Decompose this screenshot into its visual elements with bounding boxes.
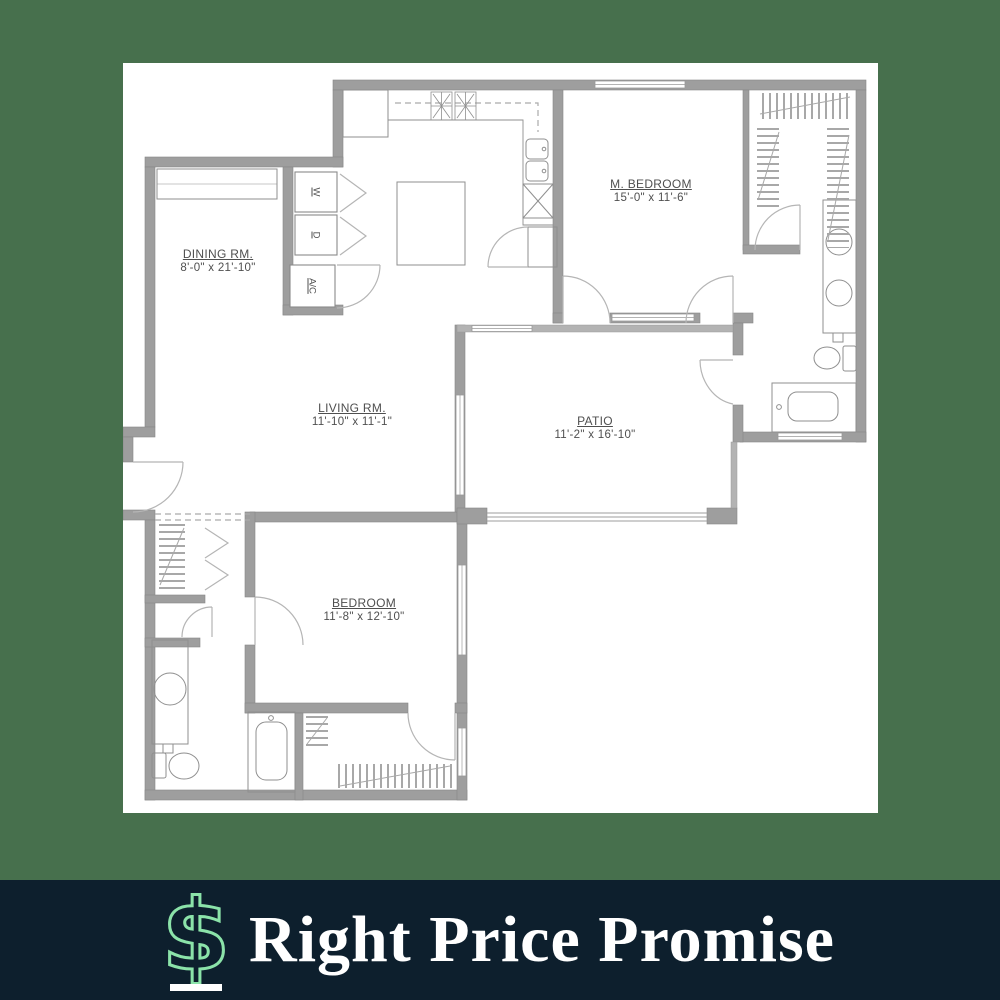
room-label-master-bedroom: M. BEDROOM 15'-0" x 11'-6" <box>610 177 692 204</box>
bath2-toilet-bowl <box>169 753 199 779</box>
ac-label: A/C <box>307 278 318 294</box>
room-name: DINING RM. <box>180 247 255 261</box>
master-tub <box>772 383 856 432</box>
hall-closet-bifold-doors <box>205 528 228 590</box>
floor-plan-panel <box>123 63 878 813</box>
ac-closet-door <box>337 265 380 308</box>
footer-title: Right Price Promise <box>249 902 835 978</box>
room-dims: 8'-0" x 21'-10" <box>180 262 255 274</box>
counter-edge <box>388 90 553 225</box>
master-closet-door <box>755 205 800 250</box>
room-dims: 15'-0" x 11'-6" <box>610 192 692 204</box>
floor-plan-drawing <box>123 63 878 813</box>
kitchen-island <box>397 182 465 265</box>
room-label-living: LIVING RM. 11'-10" x 11'-1" <box>312 401 392 428</box>
bedroom2-closet-door <box>408 713 455 760</box>
dryer-label: D <box>311 232 322 239</box>
dollar-sign-icon: $ <box>165 888 227 994</box>
room-name: LIVING RM. <box>312 401 392 415</box>
bath2-vanity <box>152 640 188 744</box>
washer-bifold-door <box>340 174 366 212</box>
cooktop-burners <box>431 92 476 120</box>
room-label-patio: PATIO 11'-2" x 16'-10" <box>554 414 635 441</box>
dishwasher <box>523 184 553 218</box>
patio-door <box>700 360 733 404</box>
entry-door <box>133 462 183 512</box>
pantry-door <box>488 227 528 267</box>
footer-banner: $ Right Price Promise <box>0 880 1000 1000</box>
walls <box>123 80 866 800</box>
dryer-bifold-door <box>340 217 366 255</box>
room-name: PATIO <box>554 414 635 428</box>
master-toilet-tank <box>843 346 856 371</box>
kitchen-fixtures <box>157 90 557 267</box>
room-name: M. BEDROOM <box>610 177 692 191</box>
room-name: BEDROOM <box>323 596 404 610</box>
room-label-dining: DINING RM. 8'-0" x 21'-10" <box>180 247 255 274</box>
master-sink-2 <box>826 280 852 306</box>
bedroom2-door <box>255 597 303 645</box>
master-toilet-bowl <box>814 347 840 369</box>
dollar-underline <box>170 984 222 991</box>
washer-label: W <box>311 188 322 197</box>
room-dims: 11'-2" x 16'-10" <box>554 429 635 441</box>
room-label-bedroom: BEDROOM 11'-8" x 12'-10" <box>323 596 404 623</box>
room-dims: 11'-8" x 12'-10" <box>323 611 404 623</box>
refrigerator <box>343 90 388 137</box>
kitchen-sink <box>526 139 548 181</box>
dollar-glyph: $ <box>165 888 227 993</box>
patio-screen <box>487 513 707 521</box>
master-bedroom-door <box>563 276 610 323</box>
bath2-door <box>182 607 212 637</box>
marketing-image: DINING RM. 8'-0" x 21'-10" M. BEDROOM 15… <box>0 0 1000 1000</box>
bath2-sink <box>154 673 186 705</box>
room-dims: 11'-10" x 11'-1" <box>312 416 392 428</box>
pantry-closet <box>528 227 557 267</box>
